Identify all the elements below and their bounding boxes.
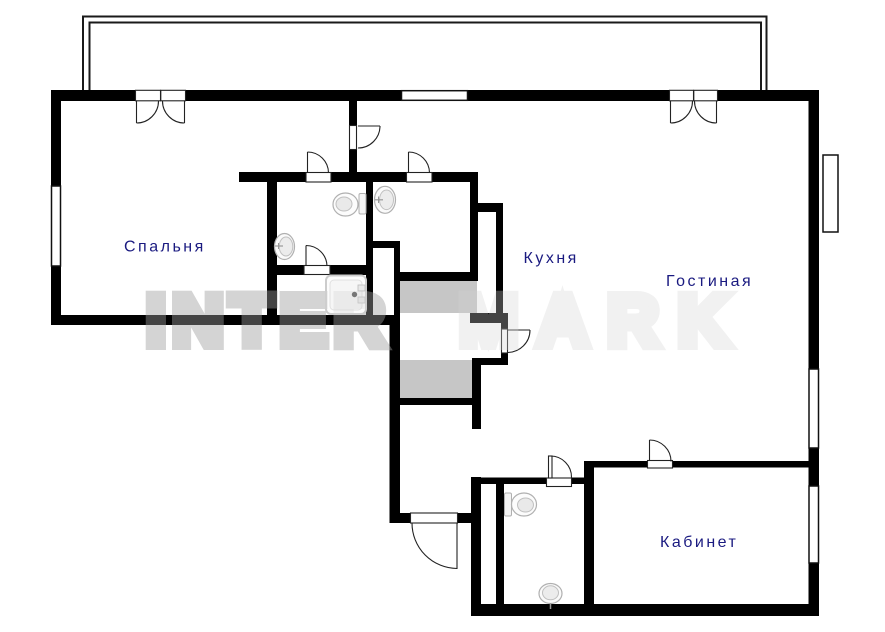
svg-text:Кухня: Кухня [524, 250, 579, 267]
svg-text:INTER: INTER [146, 282, 392, 361]
svg-text:Спальня: Спальня [124, 239, 206, 256]
svg-text:Кабинет: Кабинет [660, 534, 738, 551]
svg-text:MARK: MARK [459, 282, 748, 361]
